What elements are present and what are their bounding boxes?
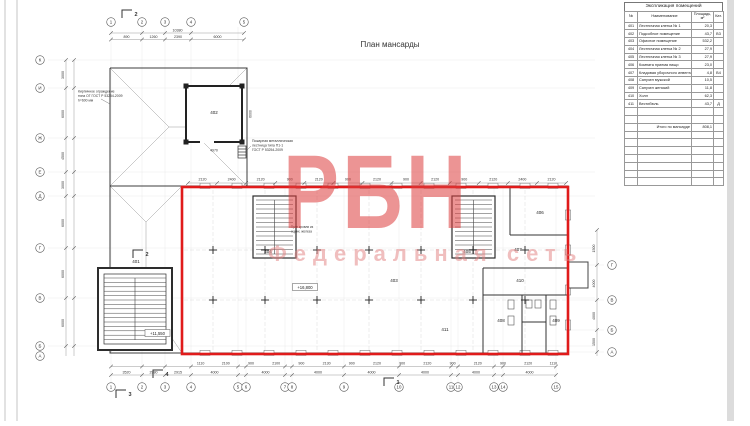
table-cell: 532,2: [692, 38, 714, 46]
axis-bubble-label: К: [39, 58, 42, 63]
table-cell: [638, 155, 692, 163]
table-cell: 27,9: [692, 53, 714, 61]
dimension-text: 900: [399, 362, 405, 366]
table-header-cell: Кат.: [714, 11, 724, 22]
table-cell: [714, 53, 724, 61]
table-row: 403Офисное помещение532,2: [625, 38, 724, 46]
axis-bubble-label: Д: [39, 194, 42, 199]
room-number-label: 411: [441, 327, 449, 332]
table-row: [625, 131, 724, 139]
table-cell: [638, 139, 692, 147]
table-cell: [625, 147, 638, 155]
table-cell: [638, 108, 692, 116]
elevation-stair: +11,550: [150, 331, 166, 336]
dashed-grid: [184, 190, 566, 352]
table-cell: [625, 139, 638, 147]
room-number-labels: 401402403404405406407408409410411: [132, 110, 560, 332]
axis-bubble-label: 11: [449, 385, 454, 390]
dimension-text: 6000: [214, 35, 222, 39]
dimension-text: 4000: [314, 370, 322, 374]
dimension-text: 4000: [262, 370, 270, 374]
dimension-text: 890: [124, 35, 130, 39]
axis-bubble-label: 13: [492, 385, 497, 390]
table-cell: 808,1: [692, 123, 714, 131]
fire-ladder-icon: [238, 146, 246, 158]
axis-bubble-label: А: [39, 354, 42, 359]
sheet-right-band: [727, 0, 734, 421]
table-cell: [692, 162, 714, 170]
axis-bubble-label: А: [611, 350, 614, 355]
room-number-label: 401: [132, 259, 140, 264]
axis-bubble-label: 14: [501, 385, 506, 390]
axis-bubble-label: 12: [456, 385, 461, 390]
dimension-text: 1500: [592, 245, 596, 253]
dimension-text: 2120: [315, 178, 323, 182]
dimension-text: 3000: [61, 181, 65, 189]
table-cell: [625, 116, 638, 124]
drawing-title: План мансарды: [360, 40, 419, 49]
table-row: [625, 147, 724, 155]
dimension-text: 2120: [547, 178, 555, 182]
dimension-text: 2915: [174, 370, 182, 374]
sanitary-fixtures: [508, 300, 556, 325]
room-number-label: 404: [264, 249, 272, 254]
table-cell: 404: [625, 45, 638, 53]
table-row: [625, 108, 724, 116]
table-header-cell: №: [625, 11, 638, 22]
axis-bubble-label: И: [38, 86, 41, 91]
dimension-text: 4000: [526, 370, 534, 374]
section-mark-label: 2: [145, 252, 148, 258]
ladder-note-line2: лестница типа П1-1: [252, 144, 283, 148]
table-cell: [638, 170, 692, 178]
dimension-text: 2120: [257, 178, 265, 182]
table-cell: [714, 131, 724, 139]
table-cell: 407: [625, 69, 638, 77]
table-row: 411Вестибюль43,7Д: [625, 100, 724, 108]
table-cell: [714, 38, 724, 46]
dimension-text: 2400: [518, 178, 526, 182]
table-cell: Комната приема пищи: [638, 61, 692, 69]
dimension-text: 900: [298, 362, 304, 366]
table-row: 404Лестничная клетка № 227,9: [625, 45, 724, 53]
table-row: 406Комната приема пищи23,0: [625, 61, 724, 69]
table-row: [625, 116, 724, 124]
table-cell: [625, 162, 638, 170]
dimension-text: 900: [461, 178, 467, 182]
dimension-text: 2120: [474, 362, 482, 366]
table-cell: 411: [625, 100, 638, 108]
table-cell: Д: [714, 100, 724, 108]
dimension-text: 4000: [592, 312, 596, 320]
dimension-text: 900: [500, 362, 506, 366]
outer-walls: [110, 68, 568, 353]
table-cell: [625, 123, 638, 131]
table-row: Итого по мансарде808,1: [625, 123, 724, 131]
dimension-text: 2120: [489, 178, 497, 182]
dimension-text: 1260: [150, 35, 158, 39]
table-cell: 62,3: [692, 92, 714, 100]
balcony-bump: [568, 262, 588, 288]
dimension-text: 900: [287, 178, 293, 182]
explication-table: Экспликация помещений № Наименование Пло…: [624, 2, 723, 186]
table-cell: [638, 178, 692, 186]
room-number-label: 403: [390, 278, 398, 283]
table-header-cell: Площадь, м²: [692, 11, 714, 22]
table-cell: [692, 147, 714, 155]
table-cell: [692, 178, 714, 186]
axis-bubble-label: Е: [39, 170, 42, 175]
table-cell: 410: [625, 92, 638, 100]
table-cell: 10,5: [692, 77, 714, 85]
fence-note-line1: Кирпичное ограждение: [78, 90, 115, 94]
table-cell: [692, 155, 714, 163]
table-row: 410Холл62,3: [625, 92, 724, 100]
table-cell: Офисное помещение: [638, 38, 692, 46]
table-cell: [714, 84, 724, 92]
table-cell: [714, 92, 724, 100]
table-cell: 408: [625, 77, 638, 85]
dimension-text: 2400: [228, 178, 236, 182]
room-number-label: 410: [516, 278, 524, 283]
table-row: 405Лестничная клетка № 327,9: [625, 53, 724, 61]
table-cell: 43,7: [692, 30, 714, 38]
section-mark: [122, 10, 132, 18]
table-cell: [714, 147, 724, 155]
table-cell: [714, 77, 724, 85]
dimension-text: 900: [403, 178, 409, 182]
table-cell: [692, 108, 714, 116]
table-cell: 27,9: [692, 45, 714, 53]
table-cell: [714, 61, 724, 69]
axis-bubble-label: Ж: [38, 136, 42, 141]
room-number-label: 407: [514, 247, 522, 252]
dimension-text: 2120: [431, 178, 439, 182]
table-cell: [714, 108, 724, 116]
dimension-text: 900: [345, 178, 351, 182]
table-cell: [714, 22, 724, 30]
table-cell: [714, 45, 724, 53]
explication-grid: № Наименование Площадь, м² Кат. 401Лестн…: [624, 11, 724, 187]
dimension-text: 900: [450, 362, 456, 366]
table-header-cell: Наименование: [638, 11, 692, 22]
sheet-edge-lines: [5, 0, 17, 421]
section-mark-label: 3: [128, 392, 131, 398]
dimension-text: 6000: [61, 319, 65, 327]
dimension-text: 2120: [423, 362, 431, 366]
table-cell: [638, 116, 692, 124]
dimension-text: 4000: [592, 280, 596, 288]
room-number-label: 409: [552, 318, 560, 323]
dimension-text: 2100: [222, 362, 230, 366]
table-cell: [714, 155, 724, 163]
table-cell: [714, 123, 724, 131]
table-cell: Лестничная клетка № 3: [638, 53, 692, 61]
table-cell: 20,3: [692, 22, 714, 30]
dimension-text: 1110: [197, 362, 204, 366]
dimension-text: 1110: [550, 362, 557, 366]
dimension-text: 3000: [61, 71, 65, 79]
dimension-text: 3520: [123, 370, 131, 374]
dimension-text: 900: [248, 362, 254, 366]
table-cell: [714, 162, 724, 170]
table-row: 401Лестничная клетка № 120,3: [625, 22, 724, 30]
explication-title: Экспликация помещений: [624, 2, 723, 11]
roof-note-line2: оцинк. железа: [291, 230, 312, 234]
table-cell: Санузел мужской: [638, 77, 692, 85]
room-number-label: 408: [497, 318, 505, 323]
table-cell: Лестничная клетка № 1: [638, 22, 692, 30]
dimension-text: 2120: [373, 178, 381, 182]
table-cell: [692, 139, 714, 147]
table-cell: [714, 178, 724, 186]
table-cell: [692, 170, 714, 178]
dimension-text: 6000: [61, 110, 65, 118]
table-cell: [625, 155, 638, 163]
room-number-label: 405: [463, 249, 471, 254]
table-cell: [625, 178, 638, 186]
table-row: [625, 162, 724, 170]
table-cell: [638, 162, 692, 170]
table-row: [625, 178, 724, 186]
table-row: [625, 139, 724, 147]
table-cell: Санузел женский: [638, 84, 692, 92]
dimension-text: 4000: [421, 370, 429, 374]
dimension-text: 6000: [249, 110, 253, 118]
dimension-text: 4500: [61, 152, 65, 160]
dimension-text: 900: [349, 362, 355, 366]
table-cell: [625, 131, 638, 139]
dimension-text: 10380: [173, 29, 183, 33]
table-cell: 4,8: [692, 69, 714, 77]
table-cell: 401: [625, 22, 638, 30]
table-cell: [638, 131, 692, 139]
room-number-label: 402: [210, 110, 218, 115]
table-cell: Холл: [638, 92, 692, 100]
room-number-label: 406: [536, 210, 544, 215]
ladder-note-line1: Пожарная металлическая: [252, 139, 293, 143]
table-cell: 406: [625, 61, 638, 69]
explication-rows: 401Лестничная клетка № 120,3402Подсобное…: [625, 22, 724, 186]
table-cell: 403: [625, 38, 638, 46]
table-cell: Лестничная клетка № 2: [638, 45, 692, 53]
table-cell: 409: [625, 84, 638, 92]
roof-note-line1: Трап кровли из: [291, 225, 314, 229]
table-cell: Итого по мансарде: [638, 123, 692, 131]
dimension-text: 4000: [368, 370, 376, 374]
table-cell: [714, 116, 724, 124]
table-cell: Кладовая уборочного инвентаря: [638, 69, 692, 77]
partition-walls: [483, 186, 568, 353]
table-cell: [625, 170, 638, 178]
section-mark: [116, 390, 126, 398]
section-mark: [384, 378, 394, 386]
table-cell: В3: [714, 30, 724, 38]
axis-bubble-label: В: [611, 298, 614, 303]
table-cell: 402: [625, 30, 638, 38]
table-cell: [638, 147, 692, 155]
dimension-text: 2390: [174, 35, 182, 39]
axis-bubble-label: 15: [554, 385, 559, 390]
ladder-note-line3: ГОСТ Р 53254-2009: [252, 148, 283, 152]
axis-bubble-label: Б: [39, 344, 42, 349]
table-cell: [714, 139, 724, 147]
section-mark-label: 1: [396, 380, 399, 386]
section-mark-label: 2: [134, 12, 137, 18]
table-row: [625, 170, 724, 178]
dimension-text: 2100: [272, 362, 280, 366]
axis-bubble-label: Б: [611, 328, 614, 333]
section-mark: [133, 250, 143, 258]
dimension-text: 2120: [373, 362, 381, 366]
table-row: [625, 155, 724, 163]
table-cell: [692, 116, 714, 124]
axis-bubble-label: В: [39, 296, 42, 301]
table-cell: [692, 131, 714, 139]
table-cell: Вестибюль: [638, 100, 692, 108]
dimension-text: 6000: [61, 270, 65, 278]
table-header-row: № Наименование Площадь, м² Кат.: [625, 11, 724, 22]
dimension-text: 1500: [592, 338, 596, 346]
table-cell: Подсобное помещение: [638, 30, 692, 38]
table-cell: 23,0: [692, 61, 714, 69]
fence-note-line2: типа ОГ ГОСТ Р 53254-2009: [78, 94, 123, 98]
table-cell: В4: [714, 69, 724, 77]
table-row: 407Кладовая уборочного инвентаря4,8В4: [625, 69, 724, 77]
dimension-text: 4000: [211, 370, 219, 374]
table-cell: 11,8: [692, 84, 714, 92]
table-cell: 43,7: [692, 100, 714, 108]
dimension-text: 4000: [472, 370, 480, 374]
dimension-text: 2120: [199, 178, 207, 182]
table-cell: 405: [625, 53, 638, 61]
table-cell: [714, 170, 724, 178]
fence-note-line3: h=600 мм: [78, 99, 94, 103]
elevation-office: +16,800: [297, 285, 313, 290]
dimension-text: 2130: [323, 362, 331, 366]
table-cell: [625, 108, 638, 116]
dimension-text: 4970: [210, 149, 218, 153]
dimension-text: 6000: [61, 219, 65, 227]
dimension-text: 2120: [524, 362, 532, 366]
table-row: 402Подсобное помещение43,7В3: [625, 30, 724, 38]
table-row: 408Санузел мужской10,5: [625, 77, 724, 85]
table-row: 409Санузел женский11,8: [625, 84, 724, 92]
